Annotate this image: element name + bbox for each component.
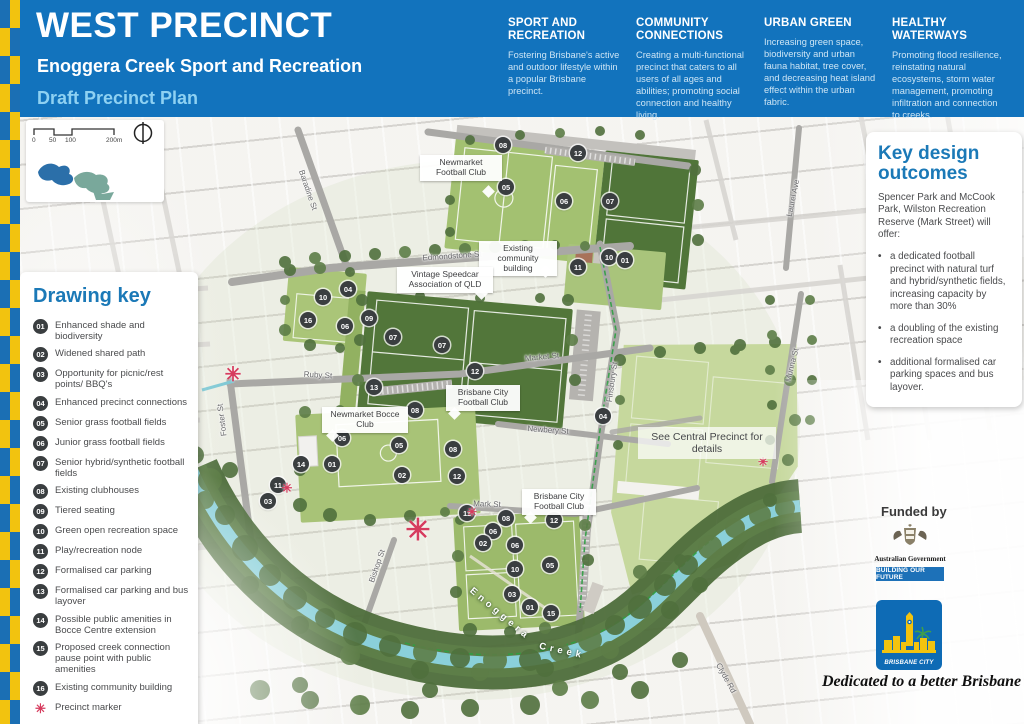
map-badge-12: 12 — [570, 145, 586, 161]
map-badge-04: 04 — [340, 281, 356, 297]
council-motto: Dedicated to a better Brisbane — [822, 673, 1021, 691]
map-badge-12: 12 — [467, 363, 483, 379]
key-item-label: Senior grass football fields — [55, 416, 166, 429]
bullet-dot: • — [878, 251, 884, 314]
key-item-label: Existing clubhouses — [55, 484, 139, 497]
drawing-key-list: 01Enhanced shade and biodiversity02Widen… — [33, 319, 190, 716]
map-badge-04: 04 — [595, 408, 611, 424]
pillar-body: Increasing green space, biodiversity and… — [764, 36, 879, 108]
map-badge-01: 01 — [324, 456, 340, 472]
key-item-07: 07Senior hybrid/synthetic football field… — [33, 456, 190, 479]
map-badge-10: 10 — [601, 249, 617, 265]
map-badge-08: 08 — [407, 402, 423, 418]
place-label: See Central Precinct for details — [638, 427, 776, 459]
border-strip-column — [0, 0, 10, 724]
key-item-label: Junior grass football fields — [55, 436, 165, 449]
brisbane-city-label: BRISBANE CITY — [884, 660, 933, 666]
map-badge-05: 05 — [542, 557, 558, 573]
key-item-label: Play/recreation node — [55, 544, 142, 557]
pillar-body: Promoting flood resilience, reinstating … — [892, 49, 1007, 121]
pillar-heading: COMMUNITY CONNECTIONS — [636, 17, 751, 43]
north-arrow-icon — [135, 122, 152, 144]
street-label: Ruby St — [304, 370, 333, 380]
precinct-marker-icon: ✳ — [405, 516, 430, 546]
scale-locator-card: 0 50 100 200m — [26, 120, 164, 202]
outcome-bullet-2: •a doubling of the existing recreation s… — [878, 323, 1010, 348]
key-item-08: 08Existing clubhouses — [33, 484, 190, 499]
drawing-key-title: Drawing key — [33, 285, 190, 308]
pillar-4: HEALTHY WATERWAYSPromoting flood resilie… — [892, 17, 1007, 121]
key-number-badge: 08 — [33, 484, 48, 499]
key-item-16: 16Existing community building — [33, 681, 190, 696]
place-label: Vintage Speedcar Association of QLD — [397, 267, 493, 293]
key-number-badge: 10 — [33, 524, 48, 539]
scale-label: 200m — [106, 137, 122, 144]
locator-map — [38, 164, 114, 200]
key-outcomes-panel: Key design outcomes Spencer Park and McC… — [866, 132, 1022, 407]
map-badge-08: 08 — [445, 441, 461, 457]
key-number-badge: 07 — [33, 456, 48, 471]
place-label: Brisbane City Football Club — [446, 385, 520, 411]
outcome-text: a doubling of the existing recreation sp… — [890, 323, 1010, 348]
brisbane-city-council-logo: BRISBANE CITY — [876, 600, 942, 670]
key-item-05: 05Senior grass football fields — [33, 416, 190, 431]
map-badge-12: 12 — [449, 468, 465, 484]
map-badge-07: 07 — [434, 337, 450, 353]
key-number-badge: 01 — [33, 319, 48, 334]
key-item-label: Existing community building — [55, 681, 172, 694]
map-badge-13: 13 — [366, 379, 382, 395]
key-item-label: Enhanced shade and biodiversity — [55, 319, 190, 342]
key-item-11: 11Play/recreation node — [33, 544, 190, 559]
key-number-badge: 04 — [33, 396, 48, 411]
key-item-06: 06Junior grass football fields — [33, 436, 190, 451]
map-badge-02: 02 — [475, 535, 491, 551]
key-item-03: 03Opportunity for picnic/rest points/ BB… — [33, 367, 190, 390]
key-item-label: Tiered seating — [55, 504, 115, 517]
key-item-02: 02Widened shared path — [33, 347, 190, 362]
australian-government-crest-icon — [888, 524, 932, 550]
map-badge-06: 06 — [337, 318, 353, 334]
map-badge-05: 05 — [391, 437, 407, 453]
map-badge-07: 07 — [385, 329, 401, 345]
key-item-14: 14Possible public amenities in Bocce Cen… — [33, 613, 190, 636]
map-badge-05: 05 — [498, 179, 514, 195]
map-badge-06: 06 — [556, 193, 572, 209]
place-label: Newmarket Bocce Club — [322, 407, 408, 433]
label-pointer — [539, 265, 552, 278]
map-badge-14: 14 — [293, 456, 309, 472]
key-item-precinct-marker: ✳Precinct marker — [33, 701, 190, 716]
pillar-body: Creating a multi-functional precinct tha… — [636, 49, 751, 121]
outcome-bullet-1: •a dedicated football precinct with natu… — [878, 251, 1010, 314]
key-item-12: 12Formalised car parking — [33, 564, 190, 579]
map-badge-09: 09 — [361, 310, 377, 326]
decorative-border-strip — [0, 0, 20, 724]
map-badge-03: 03 — [260, 493, 276, 509]
plan-label: Draft Precinct Plan — [37, 88, 198, 109]
pillar-heading: SPORT AND RECREATION — [508, 17, 623, 43]
header: WEST PRECINCT Enoggera Creek Sport and R… — [0, 0, 1024, 117]
key-number-badge: 06 — [33, 436, 48, 451]
pillar-1: SPORT AND RECREATIONFostering Brisbane's… — [508, 17, 623, 121]
pillars: SPORT AND RECREATIONFostering Brisbane's… — [508, 17, 1007, 121]
key-item-label: Proposed creek connection pause point wi… — [55, 641, 190, 675]
precinct-marker-icon: ✳ — [282, 482, 293, 495]
key-item-13: 13Formalised car parking and bus layover — [33, 584, 190, 607]
scale-label: 50 — [49, 137, 56, 144]
key-number-badge: 09 — [33, 504, 48, 519]
key-item-15: 15Proposed creek connection pause point … — [33, 641, 190, 675]
scale-label: 0 — [32, 137, 36, 144]
key-item-label: Opportunity for picnic/rest points/ BBQ'… — [55, 367, 190, 390]
precinct-plan-poster: WEST PRECINCT Enoggera Creek Sport and R… — [0, 0, 1024, 724]
key-number-badge: 16 — [33, 681, 48, 696]
map-badge-08: 08 — [498, 510, 514, 526]
key-item-01: 01Enhanced shade and biodiversity — [33, 319, 190, 342]
pillar-3: URBAN GREENIncreasing green space, biodi… — [764, 17, 879, 121]
key-number-badge: 15 — [33, 641, 48, 656]
key-number-badge: 03 — [33, 367, 48, 382]
key-item-09: 09Tiered seating — [33, 504, 190, 519]
outcome-bullet-3: •additional formalised car parking space… — [878, 357, 1010, 395]
key-item-label: Green open recreation space — [55, 524, 178, 537]
map-badge-03: 03 — [504, 586, 520, 602]
outcome-text: additional formalised car parking spaces… — [890, 357, 1010, 395]
key-item-label: Precinct marker — [55, 701, 122, 714]
scale-locator-graphics — [26, 120, 164, 202]
page-subtitle: Enoggera Creek Sport and Recreation — [37, 56, 362, 77]
bullet-dot: • — [878, 357, 884, 395]
key-outcomes-intro: Spencer Park and McCook Park, Wilston Re… — [878, 192, 1010, 242]
street-label: Mark St — [473, 499, 501, 509]
map-badge-06: 06 — [507, 537, 523, 553]
key-item-04: 04Enhanced precinct connections — [33, 396, 190, 411]
page-title: WEST PRECINCT — [36, 6, 332, 46]
pillar-2: COMMUNITY CONNECTIONSCreating a multi-fu… — [636, 17, 751, 121]
scale-label: 100 — [65, 137, 76, 144]
map-badge-10: 10 — [315, 289, 331, 305]
pillar-body: Fostering Brisbane's active and outdoor … — [508, 49, 623, 97]
place-label: Brisbane City Football Club — [522, 489, 596, 515]
key-outcomes-title: Key design outcomes — [878, 144, 1010, 184]
map-badge-01: 01 — [522, 599, 538, 615]
drawing-key-panel: Drawing key 01Enhanced shade and biodive… — [20, 272, 198, 724]
key-number-badge: 13 — [33, 584, 48, 599]
border-strip-column — [10, 0, 20, 724]
key-item-label: Formalised car parking and bus layover — [55, 584, 190, 607]
precinct-marker-icon: ✳ — [33, 701, 48, 716]
map-badge-07: 07 — [602, 193, 618, 209]
building-our-future-badge: BUILDING OUR FUTURE — [876, 567, 944, 581]
map-badge-15: 15 — [543, 605, 559, 621]
key-item-label: Senior hybrid/synthetic football fields — [55, 456, 190, 479]
map-badge-02: 02 — [394, 467, 410, 483]
key-number-badge: 12 — [33, 564, 48, 579]
key-item-label: Enhanced precinct connections — [55, 396, 187, 409]
map-badge-11: 11 — [570, 259, 586, 275]
scale-bar — [34, 129, 114, 135]
key-outcomes-list: •a dedicated football precinct with natu… — [878, 251, 1010, 394]
key-number-badge: 02 — [33, 347, 48, 362]
australian-government-logo: Australian Government — [874, 524, 946, 563]
precinct-marker-icon: ✳ — [225, 365, 242, 385]
map-badge-01: 01 — [617, 252, 633, 268]
precinct-marker-icon: ✳ — [467, 506, 477, 518]
map-badge-16: 16 — [300, 312, 316, 328]
place-label: Newmarket Football Club — [420, 155, 502, 181]
key-number-badge: 05 — [33, 416, 48, 431]
key-item-label: Formalised car parking — [55, 564, 152, 577]
key-number-badge: 14 — [33, 613, 48, 628]
city-hall-palm-icon — [880, 612, 938, 660]
australian-government-name: Australian Government — [874, 555, 946, 563]
key-number-badge: 11 — [33, 544, 48, 559]
key-item-label: Possible public amenities in Bocce Centr… — [55, 613, 190, 636]
key-item-10: 10Green open recreation space — [33, 524, 190, 539]
map-badge-10: 10 — [507, 561, 523, 577]
key-item-label: Widened shared path — [55, 347, 145, 360]
outcome-text: a dedicated football precinct with natur… — [890, 251, 1010, 314]
map-badge-08: 08 — [495, 137, 511, 153]
funded-by-label: Funded by — [881, 504, 947, 519]
bullet-dot: • — [878, 323, 884, 348]
pillar-heading: URBAN GREEN — [764, 17, 879, 30]
pillar-heading: HEALTHY WATERWAYS — [892, 17, 1007, 43]
